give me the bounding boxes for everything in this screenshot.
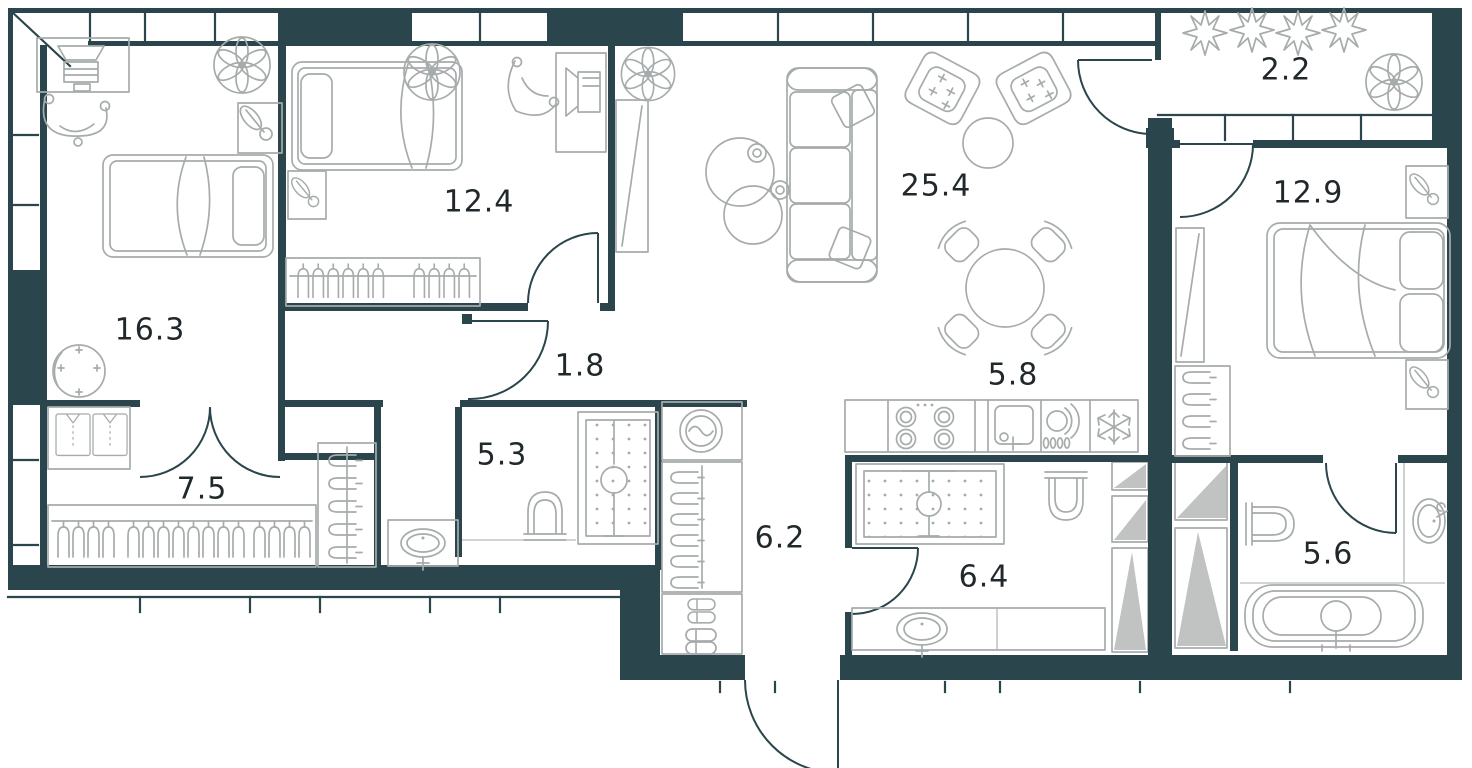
walls — [8, 8, 1462, 680]
washbasin-icon — [852, 608, 1105, 657]
washing-machine-icon — [662, 402, 742, 460]
dining-table-icon — [935, 218, 1075, 358]
pillow-icon — [301, 74, 332, 158]
toilet-icon — [1045, 472, 1087, 520]
shower-icon — [578, 412, 658, 544]
room-living-furniture — [616, 47, 1075, 358]
pillow-icon — [233, 167, 264, 245]
kitchen-counter — [845, 400, 1138, 452]
washbasin-icon — [1413, 499, 1447, 543]
room-label-bedroom-left: 16.3 — [115, 313, 186, 348]
bed-icon — [103, 155, 273, 257]
room-label-bathroom-entry: 6.4 — [959, 560, 1010, 595]
nightstand-icon — [1406, 166, 1448, 218]
cooktop-icon — [897, 404, 954, 449]
bloom-icon — [1322, 8, 1366, 52]
wardrobe-hangers-icon — [662, 462, 742, 592]
room-kitchen-furniture — [845, 400, 1138, 452]
room-label-kitchen: 5.8 — [988, 358, 1039, 393]
room-label-bedroom-top: 12.4 — [444, 185, 515, 220]
bed-icon — [1267, 223, 1450, 358]
shirt-wardrobe-icon — [48, 407, 130, 469]
room-label-bedroom-right: 12.9 — [1273, 176, 1344, 211]
mirror-wardrobe-icon — [1176, 228, 1204, 362]
room-label-living-room: 25.4 — [901, 169, 972, 204]
bloom-icon — [1230, 8, 1274, 52]
armchair-icon — [993, 49, 1074, 128]
room-entry-hall-furniture — [662, 402, 742, 654]
toilet-icon — [1246, 503, 1294, 545]
wardrobe-hangers-icon — [318, 443, 376, 567]
toilet-icon — [524, 492, 566, 540]
room-bathroom-inner-furniture — [388, 412, 658, 570]
room-label-bathroom-inner: 5.3 — [477, 438, 528, 473]
shoe-shelf-icon — [662, 594, 742, 654]
mirror-wardrobe-icon — [616, 100, 648, 252]
round-mirror-icon — [53, 345, 105, 397]
nightstand-icon — [288, 171, 326, 219]
fridge-snowflake-icon — [1098, 410, 1130, 444]
bloom-icon — [1276, 11, 1320, 55]
room-label-vestibule: 1.8 — [555, 349, 606, 384]
washbasin-icon — [388, 520, 458, 570]
shower-icon — [856, 464, 1004, 544]
plant-icon — [621, 47, 674, 100]
sofa-icon — [787, 68, 877, 282]
bloom-icon — [1183, 11, 1227, 55]
office-chair-icon — [508, 58, 558, 116]
pillow-icon — [1400, 232, 1443, 289]
pillow-icon — [1400, 294, 1443, 352]
room-bedroom-top-furniture — [286, 44, 606, 306]
room-label-bathroom-right: 5.6 — [1303, 537, 1354, 572]
desk-icon — [556, 53, 606, 152]
room-label-balcony: 2.2 — [1261, 53, 1312, 88]
wardrobe-hangers-icon — [48, 505, 316, 567]
wardrobe-hangers-icon — [286, 258, 480, 306]
kitchen-sink-icon — [995, 406, 1033, 450]
bathtub-icon — [1245, 585, 1423, 651]
room-label-entry-hall: 6.2 — [755, 521, 806, 556]
coffee-table-icon — [706, 138, 789, 244]
wardrobe-hangers-icon — [1175, 366, 1230, 456]
side-table-icon — [963, 118, 1013, 168]
plant-icon — [1366, 54, 1422, 110]
floor-plan-drawing — [0, 0, 1472, 768]
armchair-icon — [902, 49, 983, 128]
nightstand-icon — [236, 103, 282, 153]
office-chair-icon — [43, 95, 109, 147]
nightstand-icon — [1406, 360, 1448, 409]
dishwasher-icon — [1044, 404, 1080, 448]
floor-plan: 16.3 12.4 1.8 7.5 5.3 6.2 25.4 5.8 6.4 2… — [0, 0, 1472, 768]
desk-icon — [37, 38, 129, 92]
room-label-corridor: 7.5 — [177, 472, 228, 507]
